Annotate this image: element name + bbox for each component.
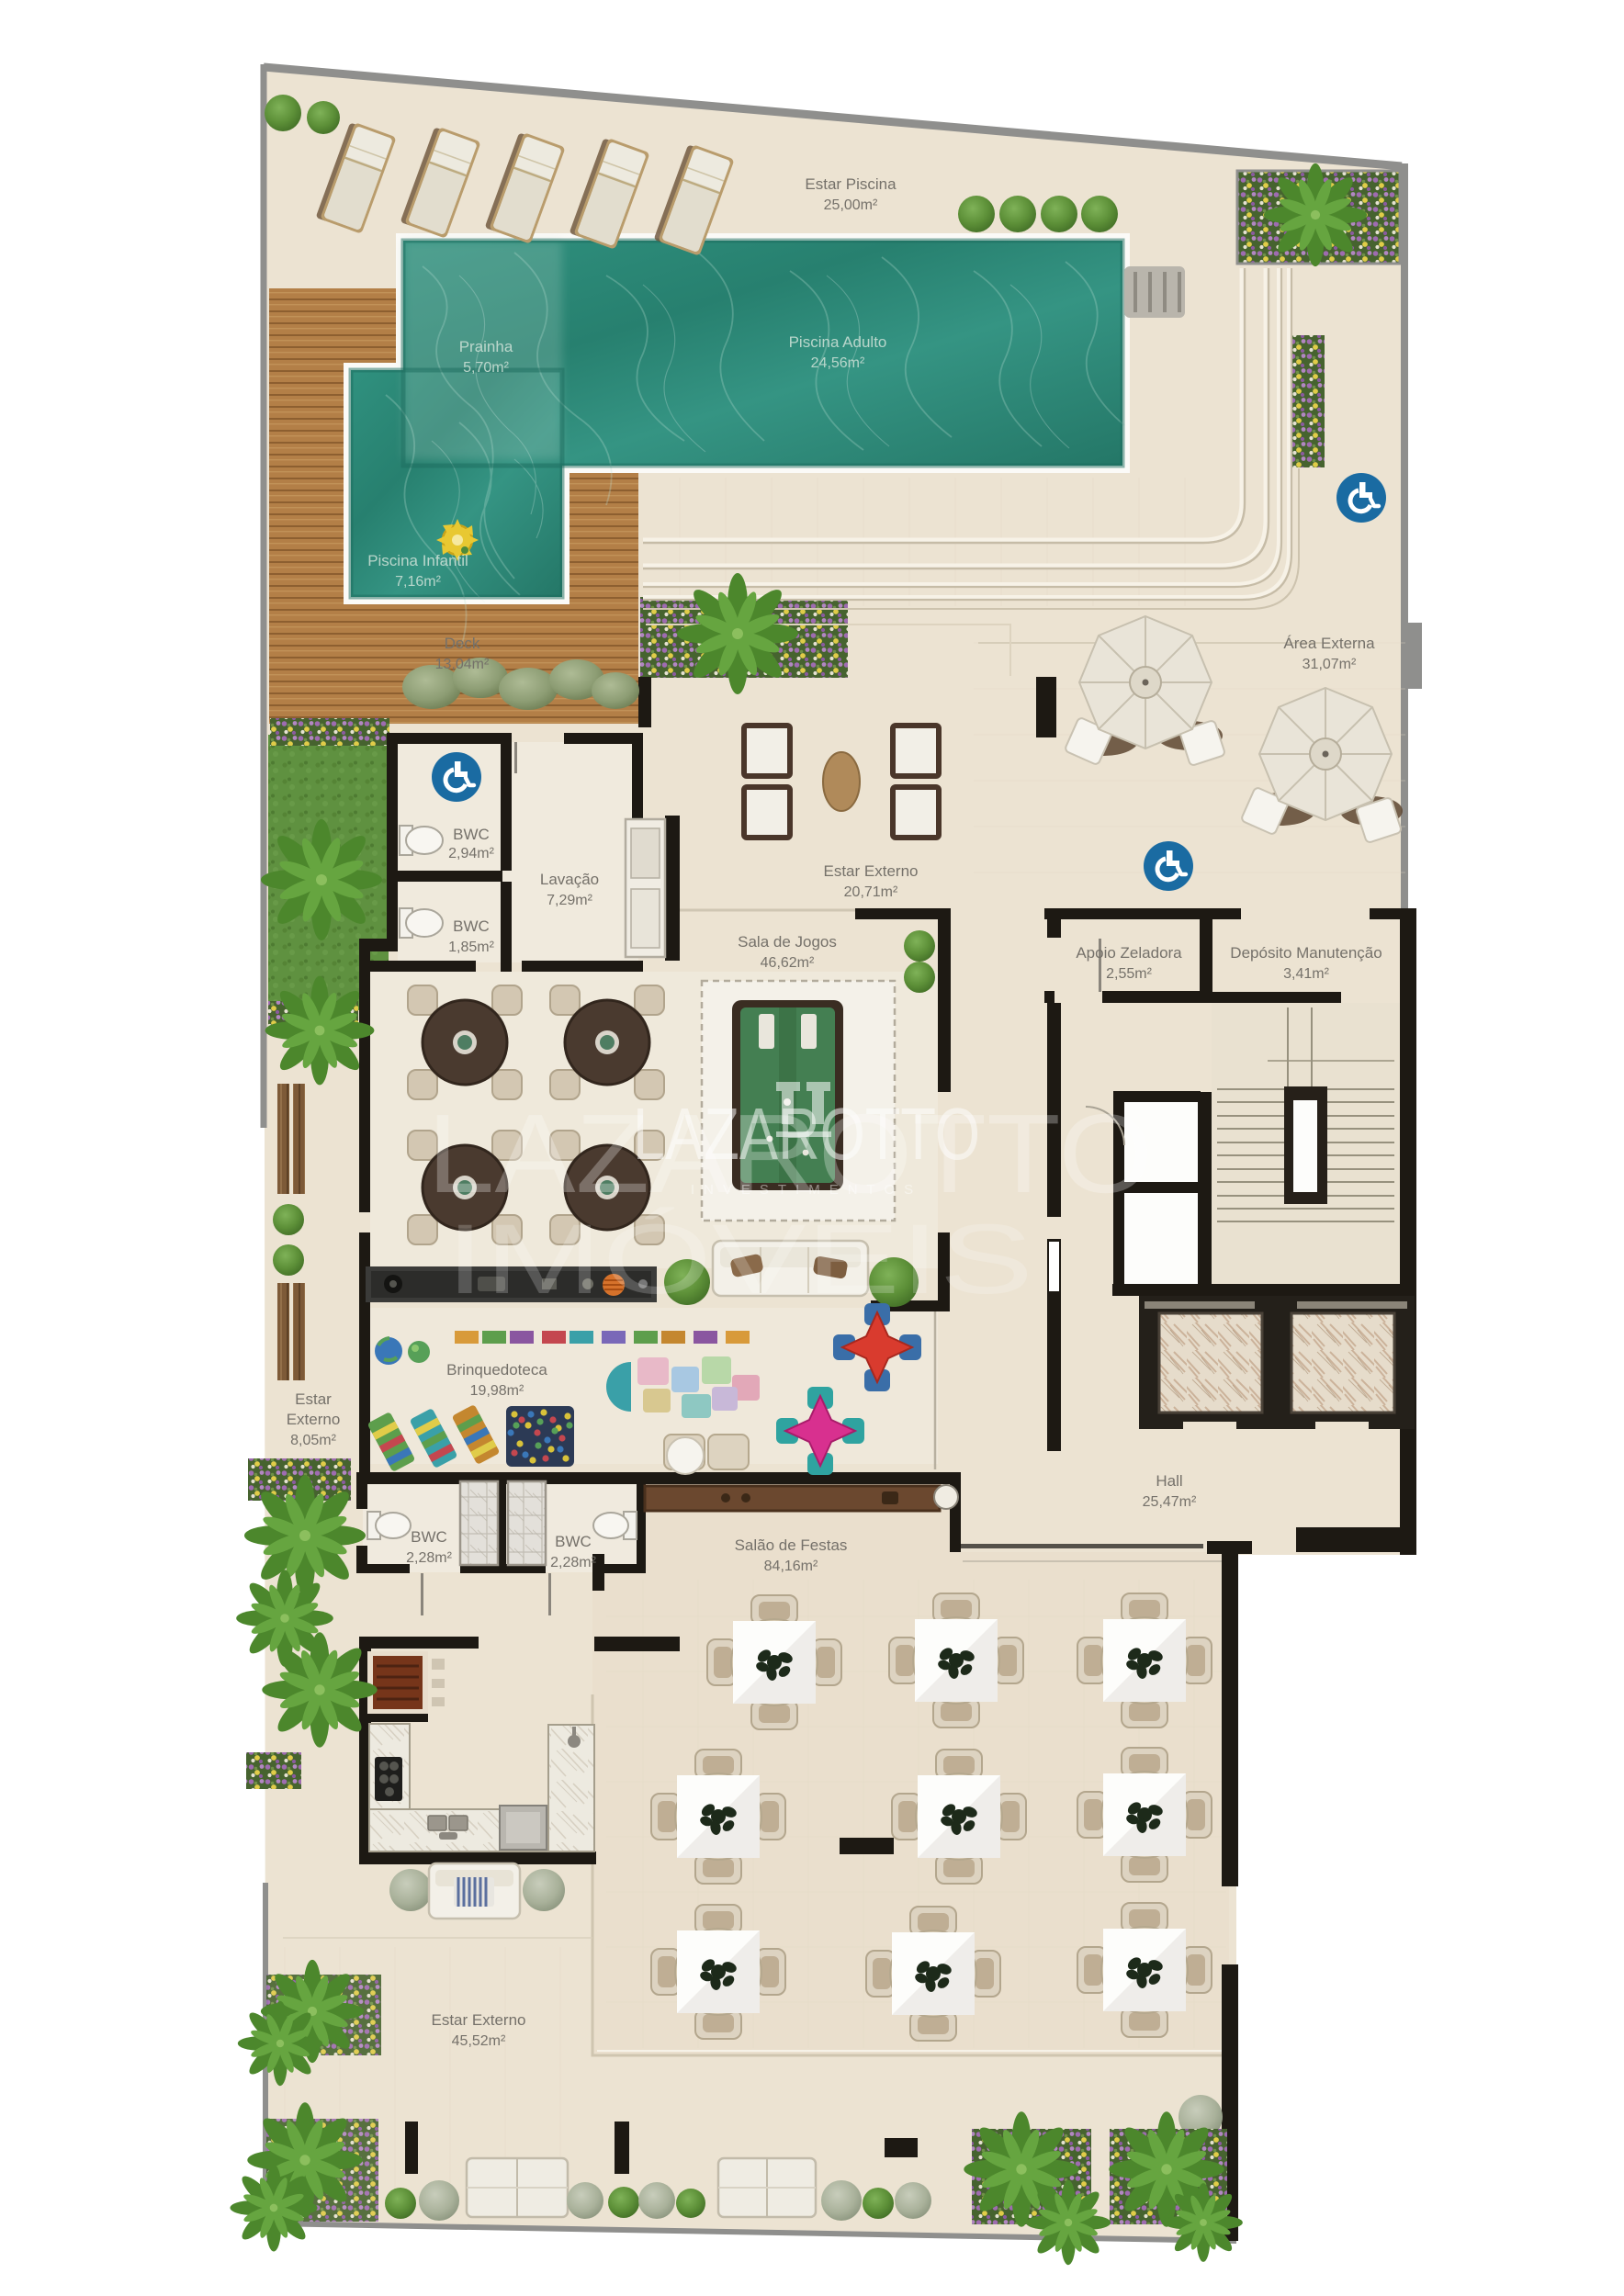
svg-text:Apoio Zeladora: Apoio Zeladora	[1076, 944, 1182, 962]
svg-text:Estar Externo: Estar Externo	[432, 2011, 526, 2029]
svg-text:Deck: Deck	[445, 635, 480, 652]
svg-text:3,41m²: 3,41m²	[1283, 966, 1329, 982]
svg-text:BWC: BWC	[411, 1528, 447, 1546]
svg-text:20,71m²: 20,71m²	[844, 884, 898, 900]
svg-text:Estar: Estar	[295, 1390, 332, 1408]
svg-text:25,47m²: 25,47m²	[1143, 1494, 1197, 1510]
svg-text:Área Externa: Área Externa	[1283, 635, 1375, 652]
svg-text:INVESTIMENTOS: INVESTIMENTOS	[691, 1182, 922, 1198]
svg-text:2,28m²: 2,28m²	[550, 1555, 596, 1570]
svg-text:Salão de Festas: Salão de Festas	[735, 1536, 848, 1554]
svg-text:25,00m²: 25,00m²	[824, 197, 878, 213]
svg-text:19,98m²: 19,98m²	[470, 1383, 524, 1399]
svg-text:13,04m²: 13,04m²	[435, 657, 490, 672]
svg-text:24,56m²: 24,56m²	[811, 355, 865, 371]
svg-text:84,16m²: 84,16m²	[764, 1559, 818, 1574]
svg-text:Brinquedoteca: Brinquedoteca	[446, 1361, 547, 1379]
svg-text:2,55m²: 2,55m²	[1106, 966, 1152, 982]
svg-text:8,05m²: 8,05m²	[290, 1433, 336, 1448]
svg-text:2,28m²: 2,28m²	[406, 1550, 452, 1566]
svg-text:1,85m²: 1,85m²	[448, 940, 494, 955]
svg-text:2,94m²: 2,94m²	[448, 846, 494, 861]
svg-text:BWC: BWC	[453, 826, 490, 843]
svg-text:31,07m²: 31,07m²	[1303, 657, 1357, 672]
svg-text:Piscina Infantil: Piscina Infantil	[367, 552, 468, 569]
svg-text:7,29m²: 7,29m²	[547, 893, 592, 908]
svg-text:5,70m²: 5,70m²	[463, 360, 509, 376]
svg-text:Externo: Externo	[287, 1411, 341, 1428]
svg-text:Prainha: Prainha	[459, 338, 513, 355]
svg-text:46,62m²: 46,62m²	[761, 955, 815, 971]
svg-text:45,52m²: 45,52m²	[452, 2033, 506, 2049]
svg-text:Sala de Jogos: Sala de Jogos	[738, 933, 837, 951]
svg-text:Hall: Hall	[1156, 1472, 1182, 1490]
svg-text:Estar Piscina: Estar Piscina	[805, 175, 897, 193]
svg-text:BWC: BWC	[555, 1533, 592, 1550]
svg-text:IMÓVEIS: IMÓVEIS	[445, 1203, 1033, 1314]
svg-text:Estar Externo: Estar Externo	[824, 862, 919, 880]
svg-text:Piscina Adulto: Piscina Adulto	[789, 333, 887, 351]
svg-text:Depósito Manutenção: Depósito Manutenção	[1230, 944, 1382, 962]
svg-text:BWC: BWC	[453, 917, 490, 935]
svg-text:Lavação: Lavação	[540, 871, 599, 888]
svg-text:7,16m²: 7,16m²	[395, 574, 441, 590]
